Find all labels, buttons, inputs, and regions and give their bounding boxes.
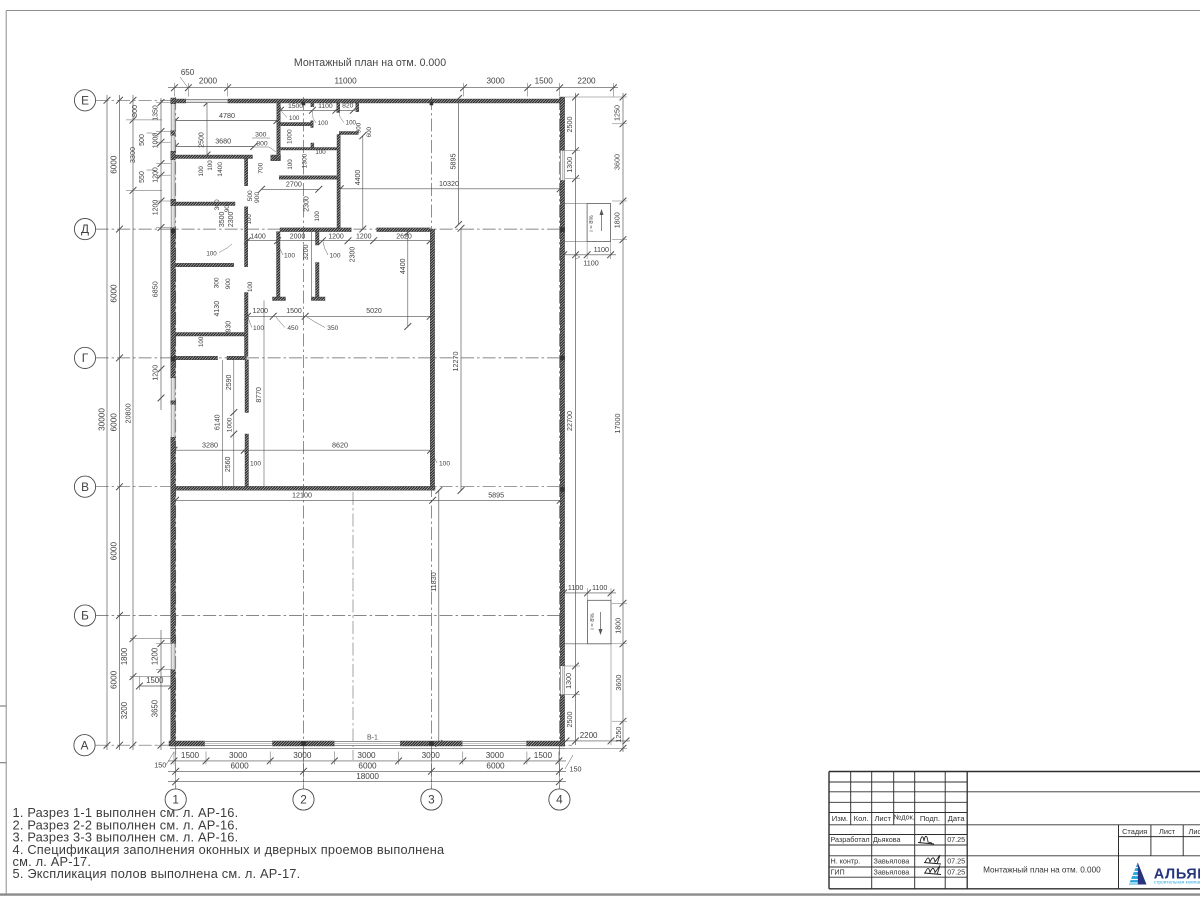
svg-text:1500: 1500 <box>288 103 303 110</box>
svg-text:700: 700 <box>257 162 264 173</box>
svg-text:2500: 2500 <box>198 132 205 148</box>
svg-text:07.25: 07.25 <box>947 867 965 876</box>
svg-text:3300: 3300 <box>128 147 137 163</box>
svg-text:Дата: Дата <box>948 814 966 823</box>
svg-text:10320: 10320 <box>439 179 459 188</box>
svg-text:1000: 1000 <box>287 129 294 144</box>
svg-text:100: 100 <box>346 120 357 127</box>
svg-text:Г: Г <box>82 351 89 365</box>
svg-text:1500: 1500 <box>535 77 554 86</box>
svg-text:Завьялова: Завьялова <box>874 857 910 866</box>
svg-text:1500: 1500 <box>286 308 302 315</box>
svg-text:В-1: В-1 <box>367 734 378 741</box>
svg-text:4400: 4400 <box>400 258 407 274</box>
svg-text:Стадия: Стадия <box>1122 827 1147 836</box>
svg-text:100: 100 <box>198 336 205 347</box>
svg-text:№док.: №док. <box>894 813 915 822</box>
svg-text:100: 100 <box>247 281 254 292</box>
svg-text:Подп.: Подп. <box>920 814 940 823</box>
svg-text:Монтажный план на отм. 0.000: Монтажный план на отм. 0.000 <box>983 865 1101 874</box>
svg-text:900: 900 <box>130 105 139 117</box>
svg-text:3200: 3200 <box>303 244 310 260</box>
svg-text:3000: 3000 <box>486 751 505 760</box>
svg-text:1100: 1100 <box>583 258 598 267</box>
svg-text:100: 100 <box>314 211 321 222</box>
svg-text:12270: 12270 <box>451 352 460 372</box>
svg-text:Лист: Лист <box>874 814 891 823</box>
svg-text:1100: 1100 <box>318 103 333 110</box>
svg-text:1800: 1800 <box>120 647 129 665</box>
svg-text:5. Экспликация полов выполнена: 5. Экспликация полов выполнена см. л. АР… <box>13 866 301 881</box>
svg-text:6000: 6000 <box>358 761 377 770</box>
svg-text:600: 600 <box>366 126 373 137</box>
svg-text:150: 150 <box>154 760 166 769</box>
svg-text:30000: 30000 <box>97 408 106 431</box>
svg-text:6850: 6850 <box>151 281 160 297</box>
svg-text:100: 100 <box>206 250 217 257</box>
svg-text:2000: 2000 <box>199 77 218 86</box>
svg-text:5020: 5020 <box>366 308 382 315</box>
svg-text:Лист: Лист <box>1159 827 1176 836</box>
svg-text:6000: 6000 <box>230 761 249 770</box>
svg-text:4130: 4130 <box>214 301 221 317</box>
svg-text:1300: 1300 <box>302 153 309 168</box>
svg-text:2: 2 <box>300 793 307 807</box>
svg-text:6000: 6000 <box>486 761 505 770</box>
svg-text:1100: 1100 <box>568 583 583 592</box>
svg-text:2300: 2300 <box>303 196 310 212</box>
svg-text:3000: 3000 <box>293 751 312 760</box>
svg-text:6000: 6000 <box>110 413 119 432</box>
svg-text:100: 100 <box>198 166 205 177</box>
svg-text:8770: 8770 <box>256 387 263 403</box>
svg-text:Кол.: Кол. <box>854 814 869 823</box>
svg-text:2500: 2500 <box>565 117 574 133</box>
svg-text:2620: 2620 <box>396 233 412 240</box>
svg-text:3200: 3200 <box>120 701 129 719</box>
svg-text:4: 4 <box>556 793 563 807</box>
svg-text:2700: 2700 <box>286 180 302 189</box>
svg-text:8620: 8620 <box>332 440 348 449</box>
svg-text:1200: 1200 <box>356 233 372 240</box>
svg-text:500: 500 <box>139 134 146 146</box>
svg-text:6000: 6000 <box>110 155 119 174</box>
svg-text:3600: 3600 <box>612 154 621 170</box>
svg-text:В: В <box>81 480 89 494</box>
svg-text:1200: 1200 <box>153 200 160 216</box>
svg-text:2560: 2560 <box>225 457 232 473</box>
svg-text:1400: 1400 <box>217 162 224 177</box>
svg-text:22700: 22700 <box>565 411 574 431</box>
svg-text:2300: 2300 <box>349 247 356 263</box>
svg-text:i = 8%: i = 8% <box>589 215 595 231</box>
svg-text:1000: 1000 <box>227 417 234 432</box>
svg-text:Н. контр.: Н. контр. <box>831 857 861 866</box>
svg-text:3680: 3680 <box>215 137 231 146</box>
svg-text:12100: 12100 <box>292 491 312 500</box>
svg-text:100: 100 <box>284 253 295 260</box>
svg-text:5895: 5895 <box>449 154 458 170</box>
svg-text:100: 100 <box>207 160 214 171</box>
svg-text:650: 650 <box>181 68 195 77</box>
svg-text:6000: 6000 <box>110 542 119 561</box>
svg-text:900: 900 <box>225 278 232 289</box>
svg-text:5895: 5895 <box>488 491 504 500</box>
svg-text:3000: 3000 <box>357 751 376 760</box>
svg-text:ГИП: ГИП <box>831 867 845 876</box>
svg-text:350: 350 <box>327 325 338 332</box>
svg-text:900: 900 <box>254 192 261 203</box>
svg-text:А: А <box>81 738 89 752</box>
svg-text:Д: Д <box>81 222 89 236</box>
svg-text:Изм.: Изм. <box>832 814 848 823</box>
svg-text:1000: 1000 <box>153 133 160 149</box>
svg-text:17000: 17000 <box>613 414 622 434</box>
svg-text:1200: 1200 <box>151 365 160 381</box>
svg-text:2200: 2200 <box>577 77 596 86</box>
svg-text:3000: 3000 <box>229 751 248 760</box>
svg-text:100: 100 <box>287 159 294 170</box>
svg-text:2200: 2200 <box>580 731 598 740</box>
svg-text:1400: 1400 <box>250 233 266 240</box>
svg-text:6000: 6000 <box>110 284 119 303</box>
svg-text:1100: 1100 <box>594 245 609 254</box>
svg-text:3500: 3500 <box>219 212 226 228</box>
svg-text:1250: 1250 <box>612 105 621 121</box>
svg-text:3650: 3650 <box>151 699 160 717</box>
svg-text:3000: 3000 <box>486 77 505 86</box>
svg-text:100: 100 <box>253 325 264 332</box>
svg-text:300: 300 <box>214 277 221 288</box>
svg-text:1250: 1250 <box>614 727 623 743</box>
svg-text:строительная компания: строительная компания <box>1154 880 1200 885</box>
svg-text:11000: 11000 <box>335 77 358 86</box>
svg-text:1300: 1300 <box>564 673 573 689</box>
svg-text:100: 100 <box>250 460 261 467</box>
svg-text:1500: 1500 <box>181 751 200 760</box>
svg-text:Монтажный план на отм. 0.000: Монтажный план на отм. 0.000 <box>294 57 446 69</box>
svg-text:550: 550 <box>139 171 146 183</box>
svg-text:1500: 1500 <box>534 751 553 760</box>
svg-text:20800: 20800 <box>124 403 133 423</box>
svg-text:6140: 6140 <box>215 414 222 430</box>
svg-text:2590: 2590 <box>226 375 233 391</box>
svg-text:1200: 1200 <box>153 167 160 183</box>
svg-text:6000: 6000 <box>110 670 119 689</box>
svg-text:100: 100 <box>315 149 326 156</box>
svg-text:07.25: 07.25 <box>947 857 965 866</box>
svg-text:300: 300 <box>255 132 267 139</box>
svg-text:Б: Б <box>81 609 89 623</box>
svg-text:1300: 1300 <box>565 157 574 173</box>
svg-text:1200: 1200 <box>151 647 160 665</box>
svg-text:1800: 1800 <box>613 618 622 634</box>
svg-text:1200: 1200 <box>253 308 269 315</box>
svg-text:100: 100 <box>329 253 340 260</box>
svg-text:Дьякова: Дьякова <box>873 835 900 844</box>
svg-text:4780: 4780 <box>219 111 235 120</box>
svg-text:Е: Е <box>81 93 89 107</box>
svg-text:100: 100 <box>439 460 450 467</box>
svg-text:07.25: 07.25 <box>947 835 965 844</box>
svg-text:1500: 1500 <box>146 676 164 685</box>
svg-text:100: 100 <box>289 115 300 122</box>
svg-text:100: 100 <box>318 120 329 127</box>
svg-text:3000: 3000 <box>422 751 441 760</box>
svg-text:2500: 2500 <box>565 712 574 728</box>
svg-text:1800: 1800 <box>612 212 621 228</box>
svg-text:3600: 3600 <box>614 675 623 691</box>
svg-text:18000: 18000 <box>356 772 379 781</box>
svg-text:4400: 4400 <box>355 170 362 186</box>
svg-text:1350: 1350 <box>153 105 160 121</box>
svg-text:820: 820 <box>342 102 354 109</box>
svg-text:Лист: Лист <box>1189 827 1200 836</box>
svg-text:3: 3 <box>428 793 435 807</box>
svg-text:2000: 2000 <box>290 233 306 240</box>
svg-text:800: 800 <box>256 141 268 148</box>
svg-text:3280: 3280 <box>202 440 218 449</box>
svg-text:1100: 1100 <box>592 583 607 592</box>
svg-text:i = 8%: i = 8% <box>590 613 596 629</box>
svg-text:1200: 1200 <box>328 233 344 240</box>
svg-text:150: 150 <box>570 765 582 774</box>
svg-text:450: 450 <box>287 325 298 332</box>
svg-text:Разработал: Разработал <box>831 835 870 844</box>
svg-text:11830: 11830 <box>429 572 438 591</box>
svg-text:2300: 2300 <box>228 212 235 228</box>
svg-text:Завьялова: Завьялова <box>874 867 910 876</box>
